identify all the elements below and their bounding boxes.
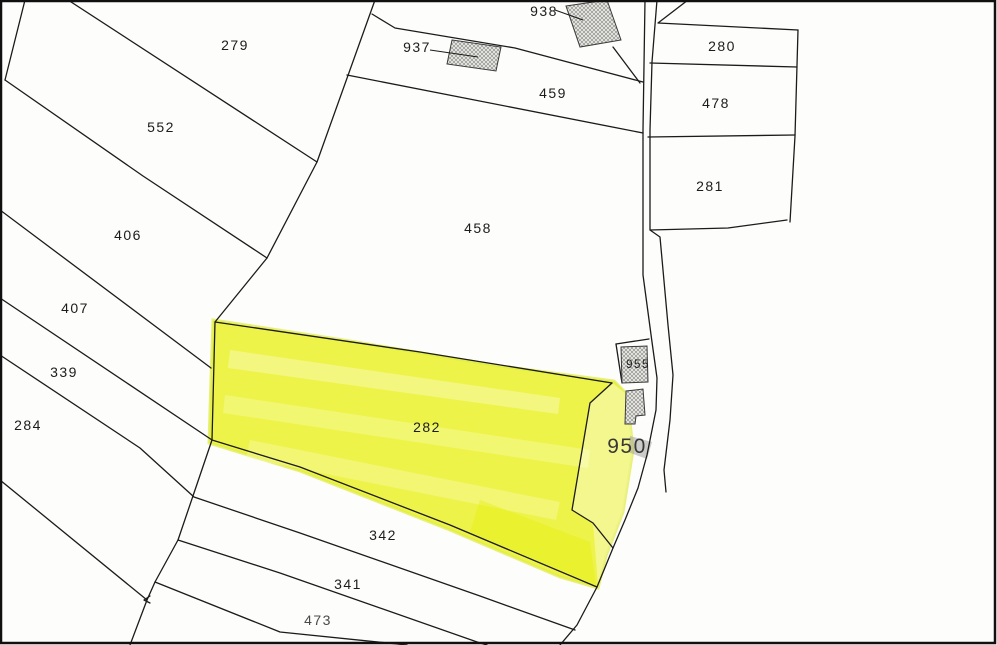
parcel-label-458: 458: [464, 220, 492, 236]
parcel-label-950: 950: [607, 435, 647, 458]
parcel-label-406: 406: [114, 227, 142, 243]
parcel-label-552: 552: [147, 119, 175, 135]
cadastral-map: 2795524064073392849379384594582804782812…: [0, 0, 997, 645]
parcel-label-339: 339: [50, 364, 78, 380]
parcel-label-938: 938: [530, 3, 558, 19]
parcel-label-955: 955: [626, 359, 650, 371]
parcel-label-459: 459: [539, 85, 567, 101]
parcel-label-478: 478: [702, 95, 730, 111]
parcel-label-281: 281: [696, 178, 724, 194]
parcel-label-282: 282: [413, 419, 441, 435]
parcel-label-407: 407: [61, 300, 89, 316]
parcel-label-284: 284: [14, 417, 42, 433]
parcel-label-342: 342: [369, 527, 397, 543]
parcel-label-341: 341: [334, 576, 362, 592]
parcel-label-473: 473: [304, 612, 332, 628]
parcel-label-937: 937: [403, 39, 431, 55]
cadastral-map-canvas: 2795524064073392849379384594582804782812…: [0, 0, 997, 645]
parcel-label-279: 279: [221, 37, 249, 53]
parcel-label-280: 280: [708, 38, 736, 54]
